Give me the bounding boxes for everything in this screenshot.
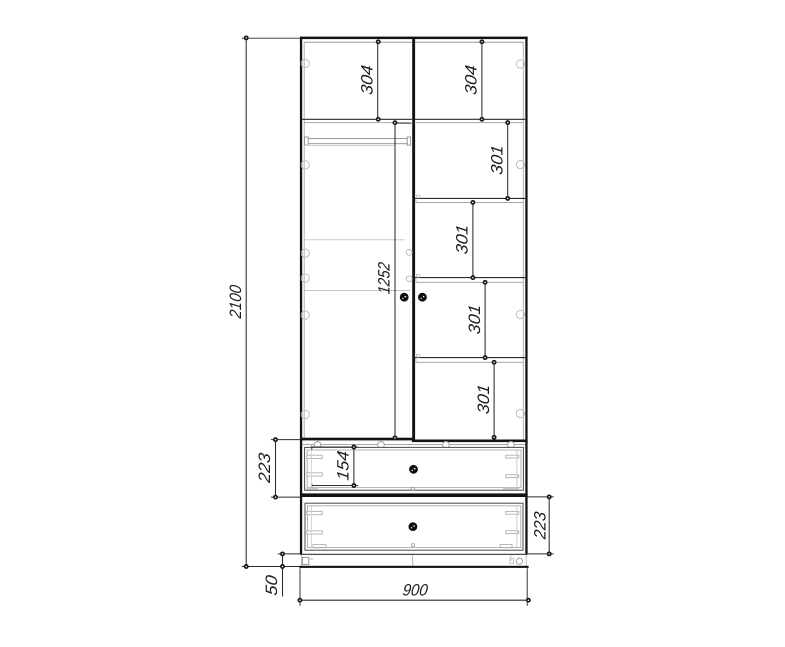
svg-text:223: 223 [531, 510, 550, 541]
svg-text:2100: 2100 [226, 283, 245, 320]
svg-text:301: 301 [465, 303, 484, 335]
svg-text:50: 50 [262, 573, 281, 596]
svg-text:304: 304 [357, 64, 376, 96]
svg-text:154: 154 [334, 450, 353, 482]
svg-text:301: 301 [487, 144, 506, 176]
svg-text:1252: 1252 [375, 261, 394, 295]
svg-text:223: 223 [255, 451, 274, 485]
svg-text:304: 304 [462, 64, 481, 96]
svg-text:301: 301 [474, 383, 493, 415]
svg-text:900: 900 [402, 581, 430, 600]
svg-text:301: 301 [453, 223, 472, 255]
